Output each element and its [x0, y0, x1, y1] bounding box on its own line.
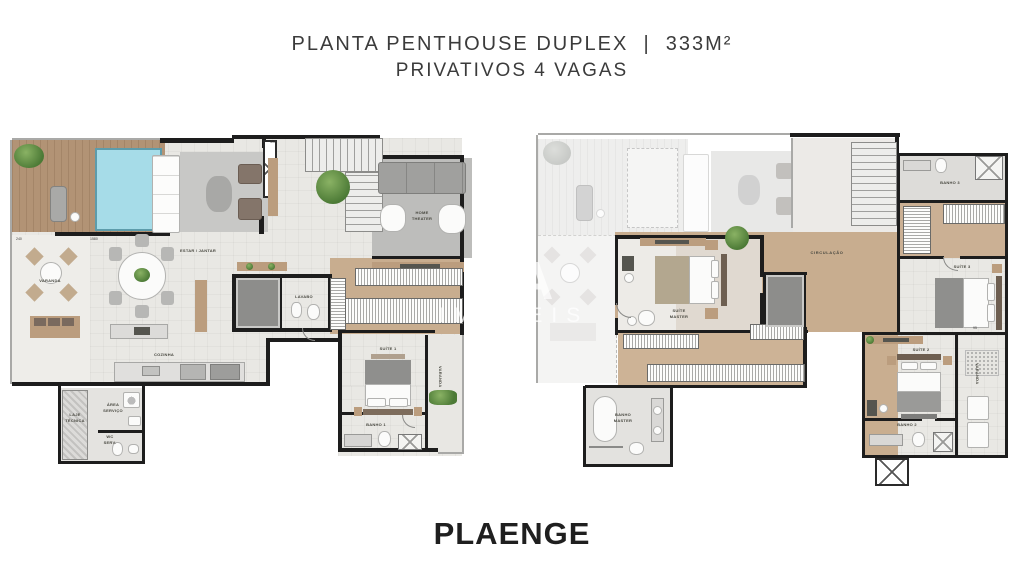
varanda-rail	[462, 333, 464, 454]
bed-blanket	[365, 360, 411, 386]
headboard	[996, 276, 1002, 330]
room-label-banho-2: BANHO 2	[887, 422, 927, 428]
wardrobe	[647, 364, 805, 382]
wardrobe	[330, 278, 346, 330]
varanda-planter	[965, 350, 999, 376]
bathroom-vanity	[869, 434, 903, 446]
plant-icon	[246, 263, 253, 270]
room-label-area-servico: ÁREA SERVIÇO	[96, 402, 130, 414]
ghost-pool	[627, 148, 678, 228]
room-label-varanda: VARANDA	[24, 278, 76, 284]
nightstand	[414, 407, 422, 416]
tree-plant-icon	[316, 170, 350, 204]
page-title: PLANTA PENTHOUSE DUPLEX | 333M²	[0, 33, 1024, 56]
brand-logo: PLAENGE	[0, 516, 1024, 552]
varanda-floor	[12, 235, 90, 385]
bed-blanket	[935, 278, 963, 328]
pillow	[367, 398, 386, 407]
ghost-chair	[544, 247, 561, 264]
wall	[790, 133, 900, 137]
dining-chair	[135, 305, 149, 318]
room-label-suite-3: SUÍTE 3	[937, 264, 987, 270]
pillow	[987, 283, 995, 301]
wall	[338, 330, 435, 333]
pillow	[711, 281, 719, 299]
wall	[897, 332, 1008, 335]
ghost-lounge-chair	[576, 185, 593, 221]
room-label-laje-tecnica: LAJE TÉCNICA	[60, 412, 90, 424]
nightstand	[943, 356, 952, 365]
room-label-banho-3: BANHO 3	[925, 180, 975, 186]
wall	[615, 235, 618, 305]
ghost-chair	[580, 289, 597, 306]
wall	[1005, 153, 1008, 458]
wall	[900, 256, 944, 259]
cooktop-icon	[134, 327, 150, 335]
stair-rail	[791, 138, 793, 228]
ghost-coffee-table	[738, 175, 760, 205]
exterior-notch	[266, 340, 338, 386]
deck-plant-icon	[14, 144, 44, 168]
wall	[958, 455, 1005, 458]
desk	[867, 400, 877, 416]
wardrobe	[355, 268, 463, 286]
pillow	[987, 304, 995, 322]
dimension-label: 95	[973, 326, 977, 330]
toilet	[935, 158, 947, 173]
headboard	[897, 354, 941, 360]
desk-chair	[879, 404, 888, 413]
room-label-cozinha: COZINHA	[144, 352, 184, 358]
wall	[160, 138, 234, 143]
room-label-suite-1: SUÍTE 1	[370, 346, 406, 352]
dimension-label: 410	[270, 140, 276, 144]
armchair	[638, 310, 655, 326]
lavabo-toilet	[307, 304, 320, 320]
tv-icon	[883, 338, 909, 342]
bed-sheet	[897, 372, 941, 392]
pillow	[901, 362, 918, 370]
bathroom-vanity	[344, 434, 372, 447]
planter-icon	[429, 390, 457, 405]
bench-cushion	[34, 318, 46, 326]
void-ghost-varanda	[538, 235, 617, 383]
elevator	[236, 278, 280, 328]
coffee-table	[206, 176, 232, 212]
page-subtitle: PRIVATIVOS 4 VAGAS	[0, 60, 1024, 82]
toilet	[378, 431, 391, 447]
room-label-varanda-suite: VARANDA	[438, 366, 443, 420]
varanda-rail-bottom	[438, 452, 464, 454]
ghost-deck-table	[596, 209, 605, 218]
headboard	[721, 254, 727, 306]
room-label-suite-master: SUÍTE MASTER	[657, 308, 701, 320]
bed-bench	[371, 354, 405, 359]
bed-blanket	[897, 392, 941, 412]
wall	[266, 338, 270, 386]
shaft-x-box	[875, 458, 909, 486]
laundry-tank	[128, 416, 141, 426]
nightstand	[992, 264, 1002, 273]
wall	[585, 385, 807, 388]
plant-icon	[866, 336, 874, 344]
toilet	[629, 442, 644, 455]
wall	[58, 461, 145, 464]
ghost-table	[560, 263, 580, 283]
balcony-rail	[10, 140, 12, 384]
tv-icon	[655, 240, 689, 244]
lounge-chair	[50, 186, 67, 222]
table-plant-icon	[134, 268, 150, 282]
wall	[955, 335, 958, 458]
wardrobe	[903, 206, 931, 254]
shower-partition	[589, 446, 623, 448]
pillow	[711, 260, 719, 278]
shower	[933, 432, 953, 452]
kitchen-sink	[142, 366, 160, 376]
deck-rail	[12, 138, 165, 140]
dining-chair	[161, 291, 174, 305]
tree-plant-icon	[725, 226, 749, 250]
wardrobe	[623, 334, 699, 349]
dining-chair	[109, 247, 122, 261]
room-label-circulacao: CIRCULAÇÃO	[797, 250, 857, 256]
lavabo-sink	[291, 302, 302, 318]
armchair	[238, 164, 262, 184]
wall	[670, 386, 673, 466]
elevator	[766, 275, 804, 327]
swivel-chair	[438, 204, 466, 234]
wall	[960, 256, 1006, 259]
room-label-suite-2: SUÍTE 2	[899, 347, 943, 353]
pillow	[920, 362, 937, 370]
ghost-chair	[544, 289, 561, 306]
shower	[975, 156, 1003, 180]
wardrobe	[943, 204, 1005, 224]
sink	[653, 406, 662, 415]
void-ghost-living	[538, 135, 793, 236]
wall	[935, 418, 955, 421]
varanda-cabinet	[967, 422, 989, 448]
plant-icon	[268, 263, 275, 270]
bench-cushion	[62, 318, 74, 326]
entry-console	[268, 158, 278, 216]
wall	[58, 386, 61, 464]
shower	[398, 434, 422, 450]
ghost-bench	[550, 323, 596, 341]
wall	[338, 448, 438, 452]
wardrobe	[345, 298, 463, 324]
desk-chair	[624, 273, 634, 283]
dining-chair	[109, 291, 122, 305]
nightstand	[887, 356, 896, 365]
wall	[900, 200, 1006, 203]
bed-blanket	[655, 256, 689, 304]
dining-chair	[135, 234, 149, 247]
wall	[268, 338, 338, 342]
staircase-upper-flight	[305, 138, 383, 172]
floorplan-page: PLANTA PENTHOUSE DUPLEX | 333M² PRIVATIV…	[0, 0, 1024, 576]
wall	[425, 335, 428, 452]
ghost-plant-icon	[543, 141, 571, 165]
deck-table	[70, 212, 80, 222]
kitchen-sideboard	[195, 280, 207, 332]
wall	[98, 430, 142, 433]
sink	[653, 426, 662, 435]
wall	[760, 235, 764, 277]
oven	[210, 364, 240, 380]
wall	[372, 256, 464, 259]
technical-slab	[62, 390, 88, 460]
dimension-label: 1580	[90, 237, 98, 241]
wall	[862, 332, 865, 458]
room-label-banho-master: BANHO MASTER	[601, 412, 645, 424]
bed-sheet	[963, 278, 989, 328]
living-sofa	[152, 155, 180, 233]
dimension-label: 240	[16, 237, 22, 241]
nightstand	[354, 407, 362, 416]
home-theater-sofa	[378, 162, 466, 194]
stove	[180, 364, 206, 380]
ghost-rail	[536, 135, 538, 383]
nightstand	[705, 308, 718, 319]
wall	[12, 382, 270, 386]
wall	[232, 328, 332, 332]
ghost-rail	[538, 133, 793, 135]
desk	[622, 256, 634, 271]
upper-floor-plan: CIRCULAÇÃO SUÍTE MASTER BANHO MASTER SUÍ…	[535, 128, 1012, 484]
lower-floor-plan: VARANDA ESTAR / JANTAR COZINHA HOME THEA…	[10, 128, 492, 468]
wall	[897, 156, 900, 204]
wall	[583, 464, 673, 467]
room-label-lavabo: LAVABO	[282, 294, 326, 300]
sink	[128, 444, 139, 454]
wall	[338, 332, 342, 452]
staircase	[851, 142, 897, 226]
ghost-sofa	[683, 154, 709, 232]
armchair	[238, 198, 262, 220]
wall	[583, 386, 586, 466]
wall	[142, 386, 145, 464]
bathroom-vanity	[651, 398, 664, 442]
pillow	[389, 398, 408, 407]
hall-console	[237, 262, 287, 271]
wall	[897, 204, 900, 332]
room-label-estar-jantar: ESTAR / JANTAR	[170, 248, 226, 254]
ghost-chair	[580, 247, 597, 264]
wall	[370, 155, 464, 159]
room-label-varanda-2: VARANDA	[975, 363, 980, 419]
nightstand	[705, 240, 718, 250]
room-label-wc-serv: WC SERV.	[96, 434, 124, 446]
room-label-home-theater: HOME THEATER	[402, 210, 442, 222]
toilet	[912, 432, 925, 447]
bathroom-vanity	[903, 160, 931, 171]
room-label-banho-1: BANHO 1	[358, 422, 394, 428]
bed-bench	[901, 414, 937, 419]
bench-cushion	[48, 318, 60, 326]
wall	[862, 332, 900, 335]
